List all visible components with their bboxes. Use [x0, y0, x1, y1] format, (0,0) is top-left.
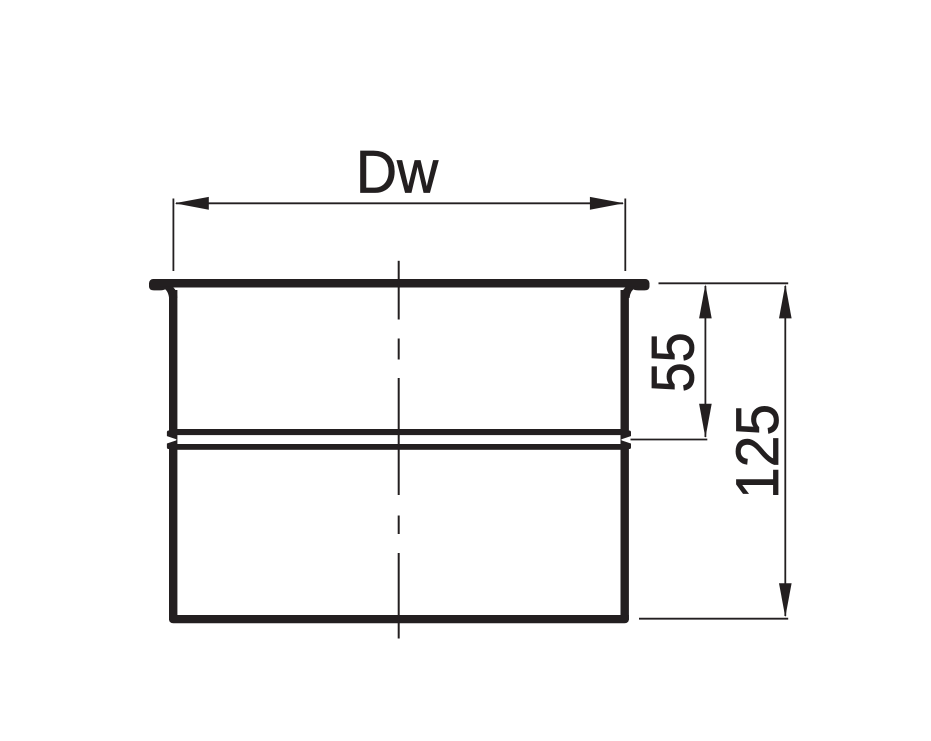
svg-text:125: 125 [725, 404, 792, 499]
svg-text:55: 55 [640, 332, 707, 392]
svg-text:Dw: Dw [356, 139, 439, 206]
